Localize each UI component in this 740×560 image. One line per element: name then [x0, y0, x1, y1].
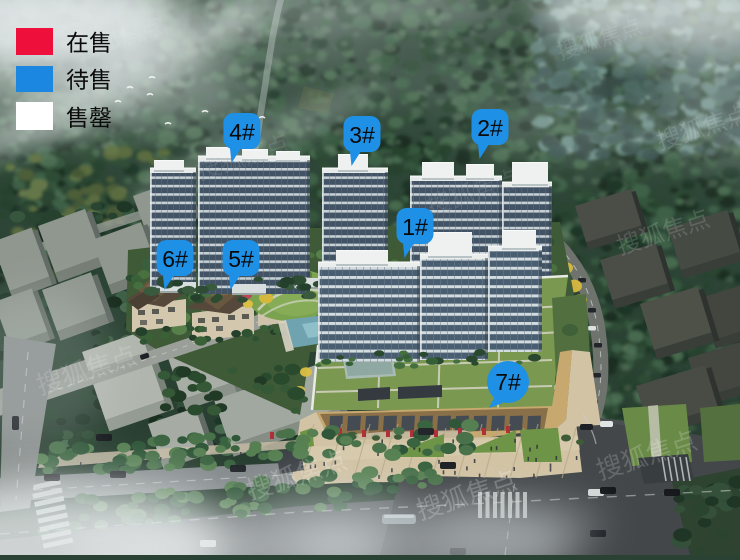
- svg-text:2#: 2#: [477, 115, 503, 141]
- svg-text:6#: 6#: [162, 246, 188, 272]
- svg-text:7#: 7#: [495, 369, 521, 395]
- svg-text:4#: 4#: [229, 119, 255, 145]
- svg-text:1#: 1#: [402, 214, 428, 240]
- svg-text:5#: 5#: [228, 246, 254, 272]
- svg-text:3#: 3#: [349, 122, 375, 148]
